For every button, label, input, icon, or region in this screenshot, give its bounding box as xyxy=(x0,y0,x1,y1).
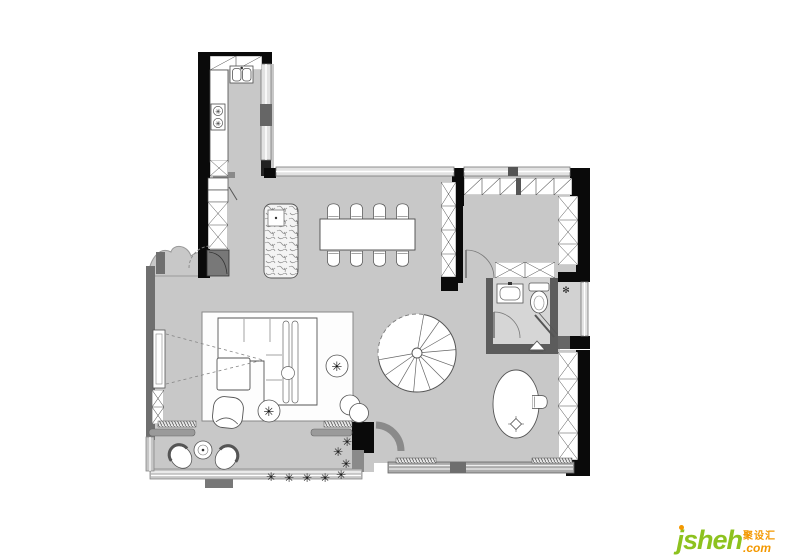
stone-island xyxy=(264,204,298,278)
plant-table: ✳ xyxy=(326,355,348,377)
bedroom-top-wardrobe xyxy=(464,178,572,195)
plant-icon: ✳ xyxy=(264,405,275,420)
ac-platform: ✻ xyxy=(562,286,570,296)
study-wardrobe xyxy=(558,352,578,460)
sofa-cushion xyxy=(282,367,295,380)
balcony-bottom-window xyxy=(150,469,362,479)
drain-icon: ✻ xyxy=(562,286,570,296)
faucet-icon xyxy=(240,67,243,70)
toilet xyxy=(529,283,549,313)
sliding-track xyxy=(158,421,196,427)
bathroom-top-storage xyxy=(495,262,555,278)
tall-cabinet xyxy=(208,202,228,225)
plant-icon: ✳ xyxy=(341,457,351,471)
bedroom-right-wall xyxy=(576,168,590,282)
sliding-track xyxy=(396,458,436,463)
column-base-wall xyxy=(441,277,458,291)
dining-table xyxy=(320,219,415,250)
dining-cabinet-column xyxy=(441,182,456,277)
brand-tld: .com xyxy=(743,542,776,554)
balcony-right-wall xyxy=(352,422,374,453)
dining-top-window xyxy=(276,167,454,176)
platform-bottom-wall-gray xyxy=(558,336,570,349)
bedroom-top-window xyxy=(464,167,570,176)
living-left-wall-step xyxy=(156,252,165,274)
balcony-left-window xyxy=(146,437,154,471)
sliding-track xyxy=(324,421,352,427)
site-watermark: jsheh聚设汇.com xyxy=(676,527,776,554)
bathroom-bottom-wall xyxy=(486,344,558,354)
shoe-cabinet xyxy=(207,250,229,276)
plant-icon: ✳ xyxy=(266,470,276,484)
study-chair xyxy=(532,396,547,409)
stove-icon: ✳ ✳ xyxy=(211,104,225,130)
floor-plan-page: ✳ ✳ xyxy=(0,0,790,558)
platform-bottom-wall xyxy=(570,336,590,349)
kitchen-right-window xyxy=(260,64,272,160)
hall-study-bottom-window xyxy=(388,462,574,473)
bathroom-right-wall xyxy=(550,278,558,348)
armchair xyxy=(211,396,244,430)
bathroom-left-wall xyxy=(486,278,493,348)
platform-top-wall xyxy=(558,272,590,282)
faucet-icon xyxy=(508,282,512,285)
tv-wall-cabinet xyxy=(152,390,164,424)
threshold-bar xyxy=(149,429,195,436)
plant-icon: ✳ xyxy=(302,471,312,485)
plant-table: ✳ xyxy=(258,400,280,422)
platform-right-window xyxy=(581,282,588,336)
brand-name: jsheh xyxy=(676,525,742,555)
balcony-side-table xyxy=(194,441,212,459)
coffee-table xyxy=(217,358,250,390)
floor-plan-drawing: ✳ ✳ xyxy=(0,0,790,558)
plant-icon: ✳ xyxy=(284,471,294,485)
bedroom-right-wardrobe xyxy=(558,196,578,265)
kitchen-base-cabinet xyxy=(210,160,228,176)
dining-window-stub xyxy=(264,168,276,178)
burner-icon: ✳ xyxy=(215,108,221,116)
burner-icon: ✳ xyxy=(215,120,221,128)
plant-icon: ✳ xyxy=(332,360,343,375)
tall-cabinet xyxy=(208,225,228,249)
plant-icon: ✳ xyxy=(342,435,352,449)
sink-vanity xyxy=(497,282,523,303)
plant-icon: ✳ xyxy=(320,471,330,485)
sliding-track xyxy=(532,458,572,463)
kitchen-sink xyxy=(230,66,253,83)
spiral-staircase xyxy=(378,314,456,392)
